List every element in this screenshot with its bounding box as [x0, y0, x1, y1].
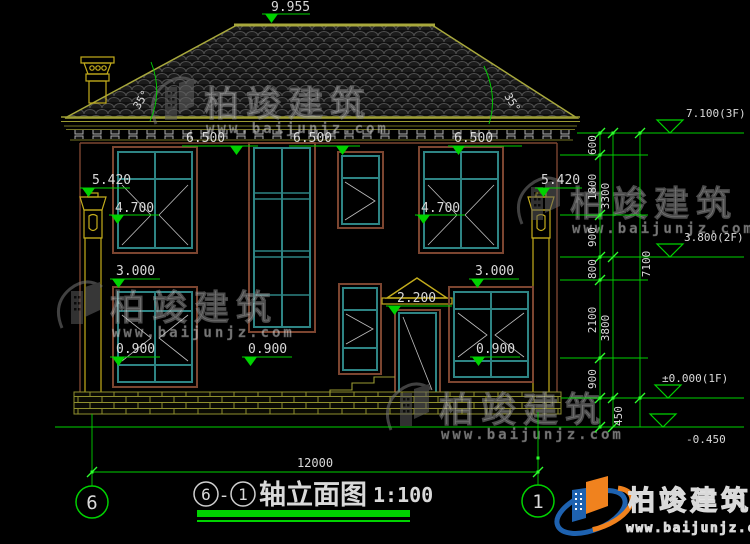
title-dash: -: [219, 485, 230, 506]
dim-label: 3800: [599, 315, 612, 342]
level-flag-1f: ±0.000(1F): [662, 372, 728, 385]
dim-label: 1800: [586, 174, 599, 201]
corner-pilaster-right: [528, 193, 554, 412]
ridge-elevation-marker: 9.955: [262, 0, 310, 23]
level-flag-ground: -0.450: [686, 433, 726, 446]
drawing-canvas: 柏竣建筑 www.baijunjz.com: [0, 0, 750, 544]
footer-logo-name: 柏竣建筑: [628, 485, 750, 517]
title-axis-start: 6: [201, 485, 211, 504]
elevation-label: 0.900: [116, 342, 155, 357]
elevation-label: 0.900: [248, 342, 287, 357]
dim-label: 900: [586, 227, 599, 247]
dim-label: 600: [586, 135, 599, 155]
footer-logo-icon: [551, 476, 638, 542]
dim-label: 450: [612, 406, 625, 426]
window-2f-right: [419, 147, 503, 253]
elevation-label: 5.420: [92, 173, 131, 188]
elevation-label: 0.900: [476, 342, 515, 357]
ridge-elevation-label: 9.955: [271, 0, 310, 15]
cad-elevation-drawing: 柏竣建筑 www.baijunjz.com: [0, 0, 750, 544]
dim-label: 900: [586, 369, 599, 389]
title-text: 轴立面图: [259, 479, 367, 511]
eave-elevation-label: 6.500: [454, 131, 493, 146]
canopy-elevation-label: 2.200: [397, 291, 436, 306]
footer-logo: 柏竣建筑 www.baijunjz.com: [551, 476, 750, 542]
elevation-label: 3.000: [475, 264, 514, 279]
elevation-label: 5.420: [541, 173, 580, 188]
eave-elevation-label: 6.500: [293, 131, 332, 146]
title-scale: 1:100: [373, 483, 433, 507]
window-1f-narrow: [339, 284, 381, 374]
window-2f-small: [338, 152, 383, 228]
footer-logo-url: www.baijunjz.com: [626, 521, 750, 536]
eave-elevation-label: 6.500: [186, 131, 225, 146]
dim-label: 800: [586, 259, 599, 279]
drawing-title: 6 - 1 轴立面图 1:100: [194, 479, 433, 521]
elevation-label: 3.000: [116, 264, 155, 279]
level-flag-2f: 3.800(2F): [684, 231, 744, 244]
watermark: [152, 78, 388, 137]
window-1f-right: [449, 287, 533, 382]
dim-total-width: 12000: [297, 456, 333, 470]
axis-bubble-left: 6: [86, 492, 97, 514]
level-flag-3f: 7.100(3F): [686, 107, 746, 120]
elevation-label: 4.700: [421, 201, 460, 216]
title-axis-end: 1: [238, 485, 248, 504]
dim-label: 2100: [586, 307, 599, 334]
axis-bubble-right: 1: [532, 491, 543, 513]
dim-label: 3300: [599, 183, 612, 210]
watermark: [58, 282, 294, 341]
dim-total-height: 7100: [640, 251, 653, 278]
watermark: [387, 384, 623, 443]
elevation-label: 4.700: [115, 201, 154, 216]
window-2f-left: [113, 147, 197, 253]
